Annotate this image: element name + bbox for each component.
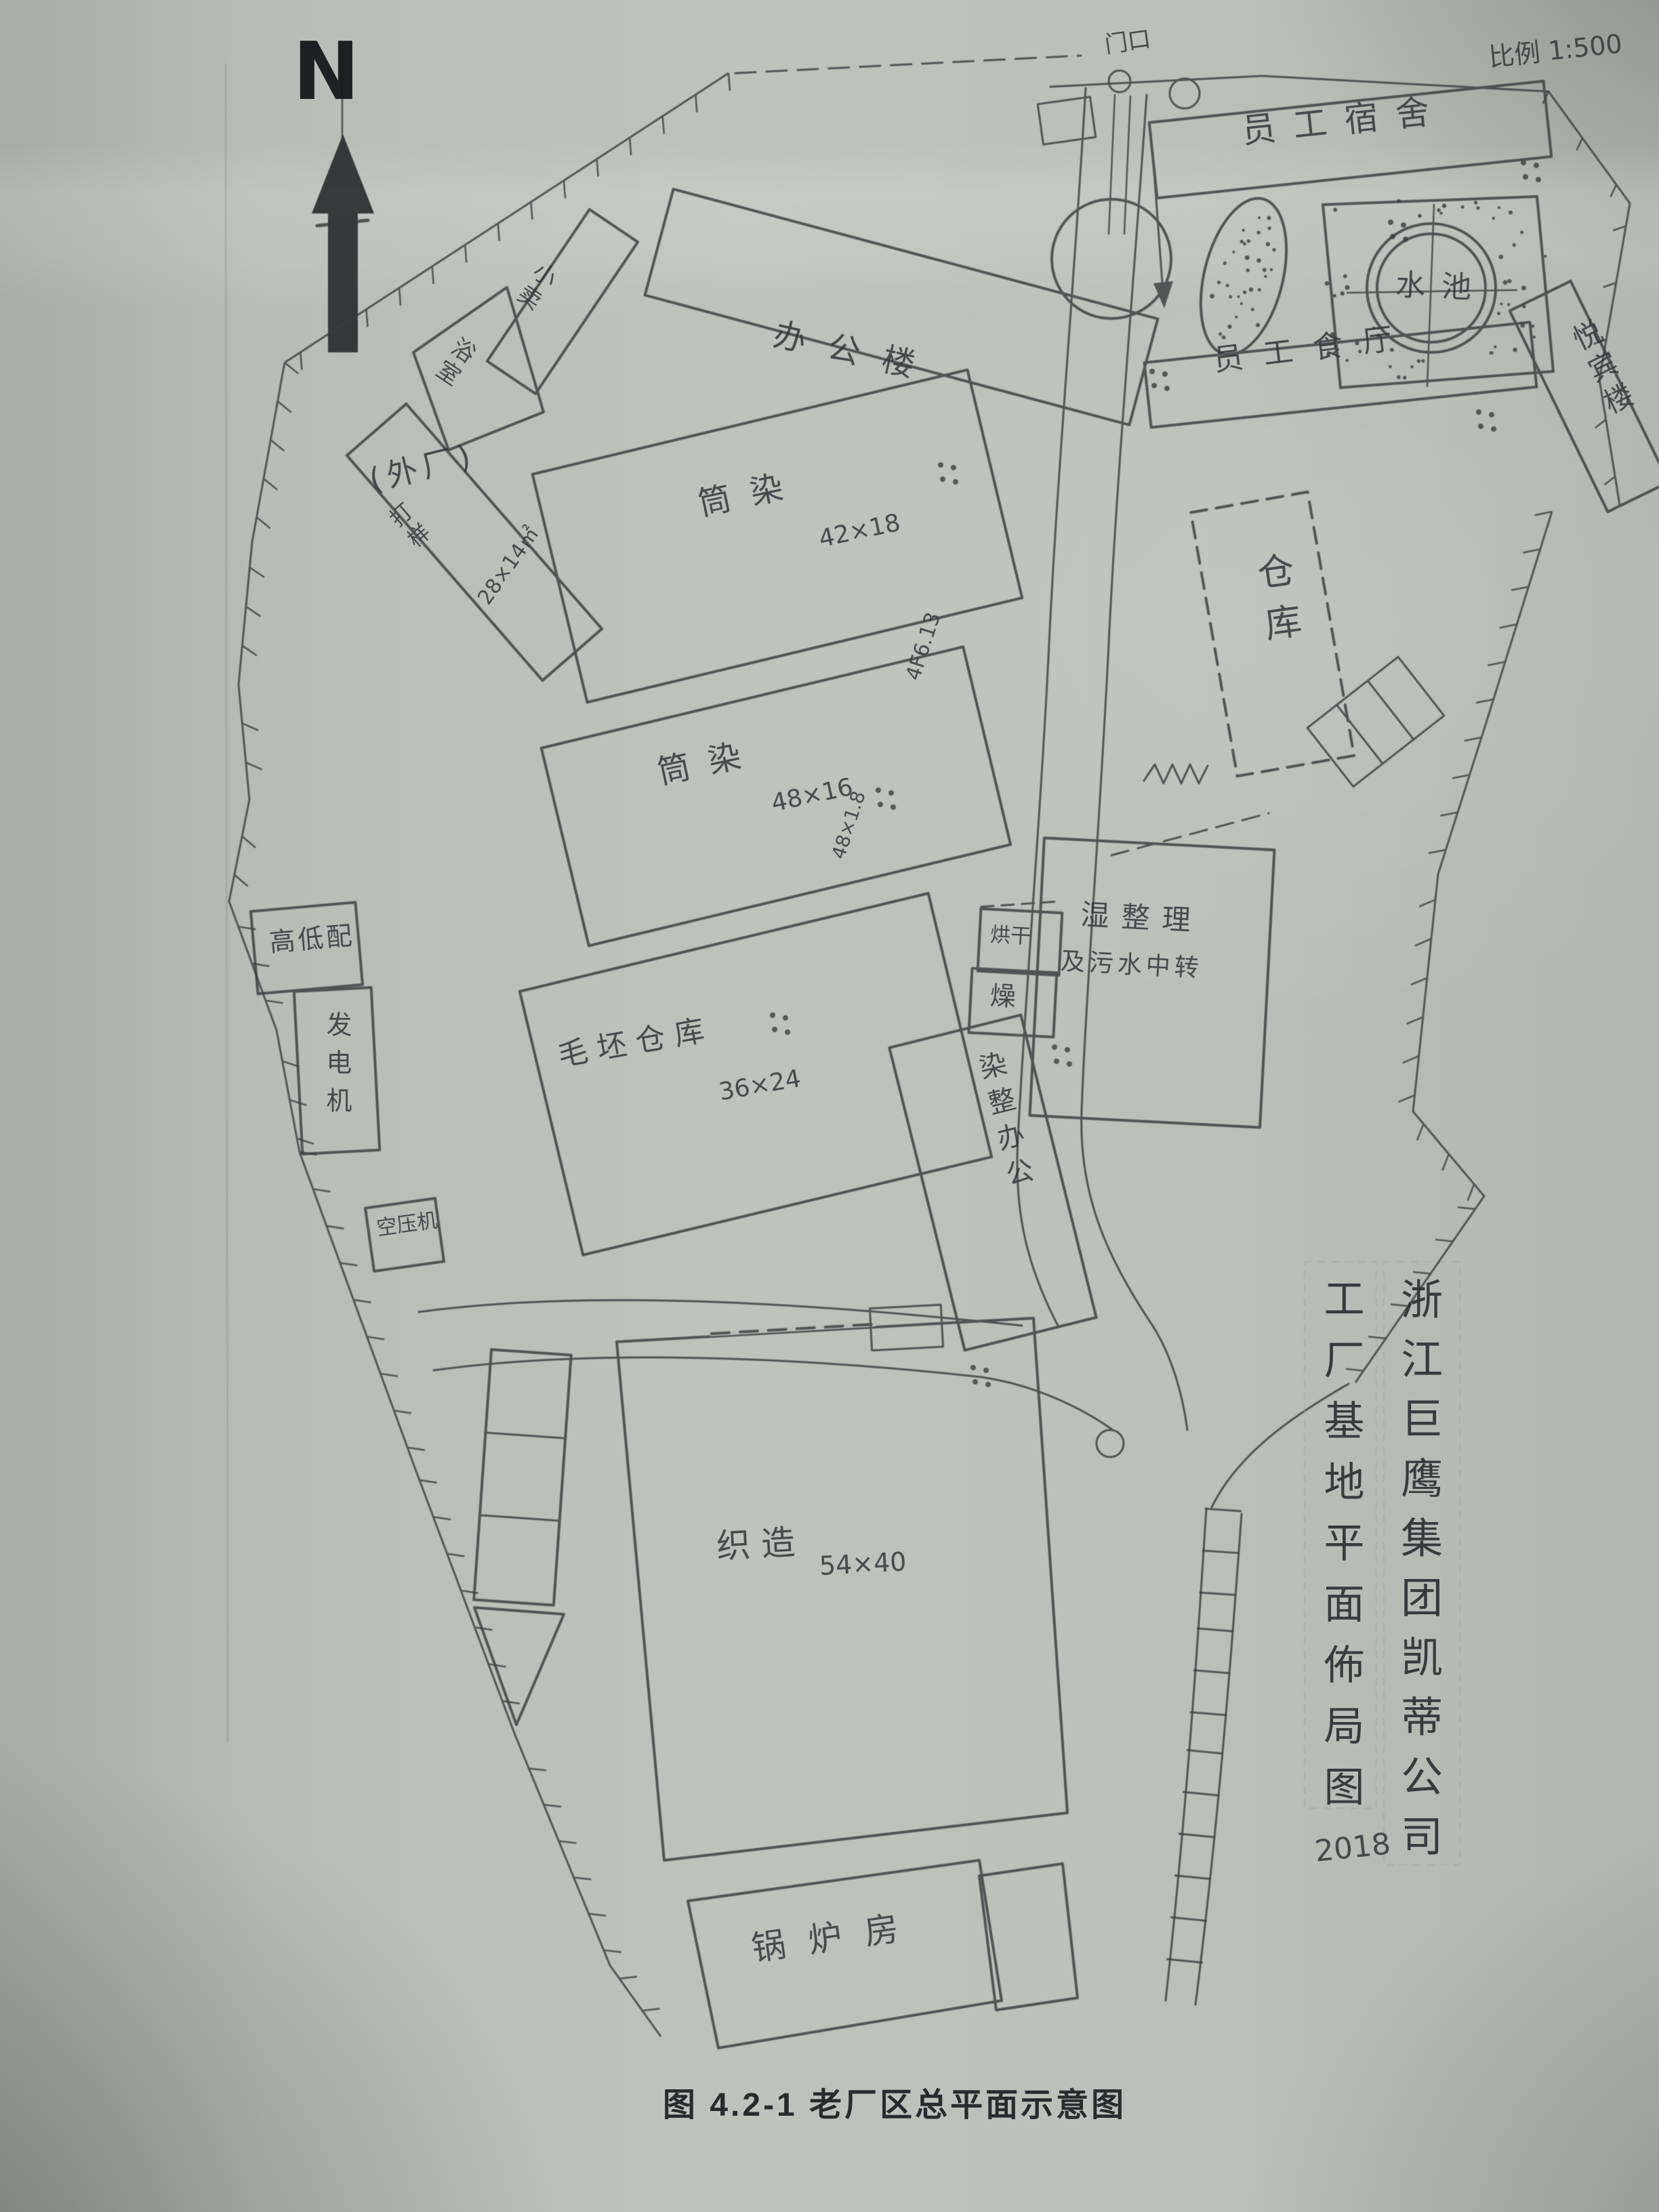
vent-dots (1052, 1044, 1057, 1050)
vent-dots (951, 465, 956, 470)
vent-dots (770, 1012, 775, 1018)
vent-dots (1067, 1061, 1072, 1067)
vent-dots (985, 1382, 991, 1387)
vent-dots (878, 802, 883, 807)
vent-dots (890, 804, 896, 810)
vent-dots (772, 1027, 777, 1032)
vent-dots (1164, 386, 1170, 391)
figure-caption: 图 4.2-1 老厂区总平面示意图 (663, 2089, 1126, 2123)
vent-dots (1388, 220, 1393, 225)
vent-dots (1151, 383, 1157, 388)
side-sheds (474, 1349, 571, 1605)
steps-structure (1307, 657, 1444, 786)
vent-dots (1162, 371, 1168, 377)
vent-dots (1476, 409, 1481, 415)
vent-dots (1478, 424, 1483, 429)
vent-dots (1401, 222, 1406, 228)
vent-dots (1390, 234, 1395, 239)
north-label: N (293, 30, 360, 114)
vent-dots (1534, 163, 1539, 168)
building-label-pool: 水池 (1395, 270, 1488, 304)
weaving-outline (617, 1318, 1067, 1860)
weaving-dim: 54×40 (819, 1549, 907, 1580)
building-label-drying-room: 烘干 (989, 924, 1031, 948)
building-label-weaving: 织造 (716, 1524, 807, 1564)
vent-dots (1065, 1047, 1070, 1052)
vent-dots (983, 1368, 989, 1373)
building-label-generator: 发电机 (323, 1011, 350, 1125)
title-year: 2018 (1313, 1828, 1392, 1868)
vent-dots (970, 1365, 976, 1370)
vent-dots (783, 1015, 788, 1021)
wet-finishing-outline (1030, 838, 1275, 1127)
vent-dots (888, 790, 894, 796)
building-label-wet-finishing: 湿整理 (1080, 900, 1204, 936)
vent-dots (1149, 369, 1155, 374)
site-plan-photo: N 比例 1:500 门口 员工宿舍 水池 悦宾楼 员工食厅 办公楼 小卖 浴室… (0, 0, 1659, 2212)
vent-dots (940, 476, 945, 482)
outer-factory-outline (347, 404, 602, 680)
vent-dots (1403, 237, 1408, 242)
vent-dots (1523, 174, 1528, 180)
vent-dots (1054, 1059, 1059, 1064)
title-drawing-column: 工厂基地平面佈局图 (1319, 1277, 1361, 1826)
vent-dots (785, 1029, 790, 1035)
vent-dots (938, 462, 943, 468)
gate-label: 门口 (1103, 28, 1152, 58)
vent-dots (953, 479, 958, 485)
vent-dots (1491, 426, 1496, 432)
vent-dots (1489, 412, 1494, 417)
vent-dots (1536, 177, 1541, 182)
vent-dots (972, 1379, 978, 1385)
vent-dots (1521, 160, 1526, 165)
title-company-column: 浙江巨鹰集团凯蒂公司 (1396, 1277, 1440, 1874)
building-label-drying-room-2: 燥 (989, 983, 1017, 1011)
vip-outline (1510, 281, 1659, 512)
office-outline (645, 189, 1158, 425)
dye-shop-1-outline (533, 370, 1023, 703)
vent-dots (876, 787, 881, 793)
